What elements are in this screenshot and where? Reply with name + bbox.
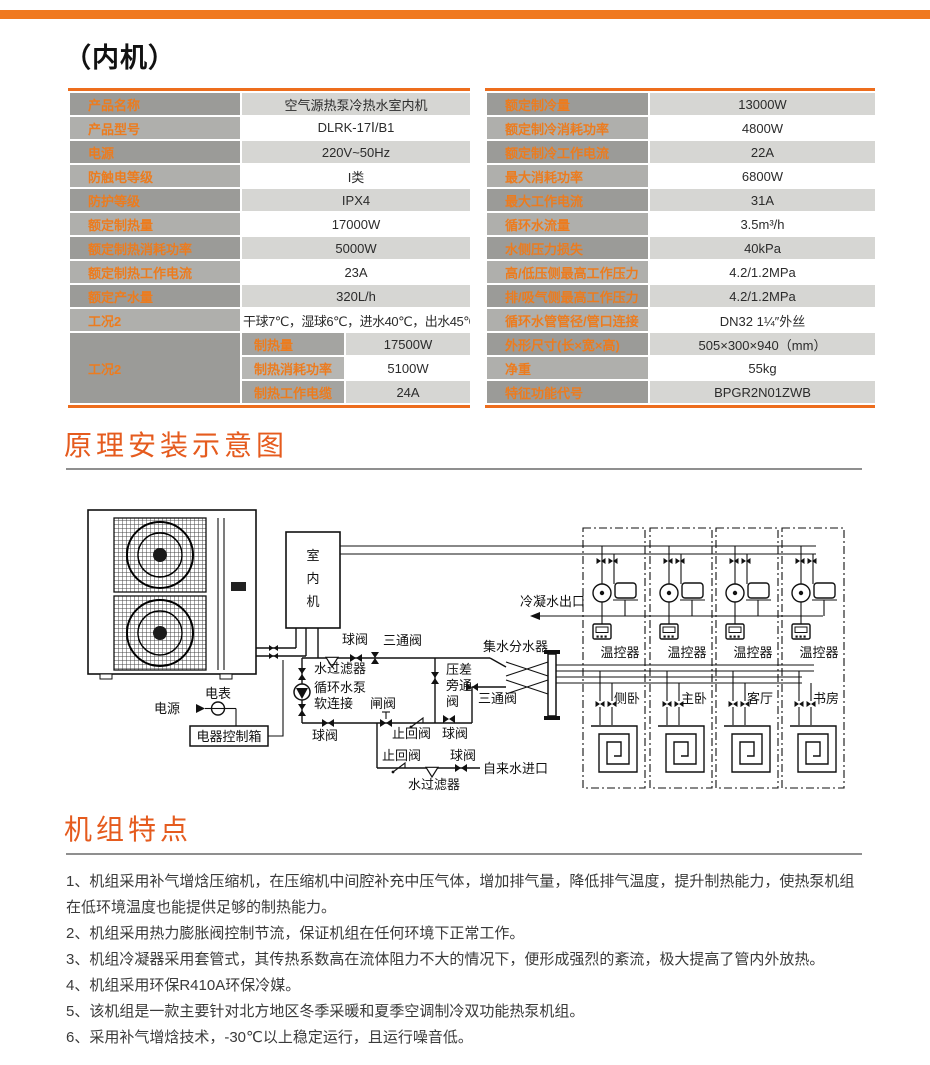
table-row: 防护等级IPX4	[69, 188, 471, 212]
tap-water-inlet-label: 自来水进口	[483, 761, 548, 776]
spec-value: 5100W	[345, 356, 471, 380]
spec-value: 13000W	[649, 92, 876, 116]
table-row: 外形尺寸(长×宽×高)505×300×940（mm）	[486, 332, 876, 356]
table-row: 额定产水量320L/h	[69, 284, 471, 308]
thermostat-label: 温控器	[667, 645, 706, 660]
feature-item: 3、机组冷凝器采用套管式，其传热系数高在流体阻力不大的情况下，便形成强烈的紊流，…	[66, 947, 866, 973]
spec-value: 23A	[241, 260, 471, 284]
indoor-unit: 室 内 机	[286, 532, 340, 628]
ball-valve-icon	[443, 715, 455, 723]
spec-label: 防护等级	[69, 188, 241, 212]
spec-value: 55kg	[649, 356, 876, 380]
spec-label: 电源	[69, 140, 241, 164]
spec-label: 最大消耗功率	[486, 164, 649, 188]
room-label: 侧卧	[614, 691, 640, 706]
table-row: 额定制热消耗功率5000W	[69, 236, 471, 260]
check-valve-label: 止回阀	[392, 726, 431, 741]
indoor-unit-label: 机	[306, 594, 319, 609]
gate-valve-icon	[380, 719, 392, 727]
feature-item: 2、机组采用热力膨胀阀控制节流，保证机组在任何环境下正常工作。	[66, 921, 866, 947]
spec-value: 空气源热泵冷热水室内机	[241, 92, 471, 116]
manifold-icon	[544, 650, 560, 720]
spec-label: 额定制热工作电流	[69, 260, 241, 284]
spec-value: 17000W	[241, 212, 471, 236]
table-row: 额定制冷消耗功率4800W	[486, 116, 876, 140]
power-arrow-icon	[196, 704, 205, 713]
table-row: 额定制热工作电流23A	[69, 260, 471, 284]
soft-connection-icon	[298, 668, 306, 680]
spec-group-label: 工况2	[69, 332, 241, 404]
spec-value: DN32 1¼″外丝	[649, 308, 876, 332]
table-row: 循环水管管径/管口连接DN32 1¼″外丝	[486, 308, 876, 332]
spec-value: 4.2/1.2MPa	[649, 260, 876, 284]
three-way-valve-label: 三通阀	[478, 691, 517, 706]
table-row: 产品型号DLRK-17Ⅰ/B1	[69, 116, 471, 140]
table-row: 额定制冷量13000W	[486, 92, 876, 116]
spec-value: 22A	[649, 140, 876, 164]
spec-table-right: 额定制冷量13000W 额定制冷消耗功率4800W 额定制冷工作电流22A 最大…	[485, 88, 875, 408]
bypass-valve-icon	[431, 672, 439, 684]
spec-label: 额定制热消耗功率	[69, 236, 241, 260]
spec-value: 4.2/1.2MPa	[649, 284, 876, 308]
room-label: 书房	[813, 691, 839, 706]
power-supply-label: 电源	[154, 701, 180, 716]
spec-label: 产品型号	[69, 116, 241, 140]
circulation-pump-label: 循环水泵	[314, 680, 366, 695]
table-row: 循环水流量3.5m³/h	[486, 212, 876, 236]
electric-meter-label: 电表	[205, 686, 231, 701]
catalog-page: （内机） 产品名称空气源热泵冷热水室内机 产品型号DLRK-17Ⅰ/B1 电源2…	[0, 0, 930, 1065]
ball-valve-icon	[322, 719, 334, 727]
feature-list: 1、机组采用补气增焓压缩机，在压缩机中间腔补充中压气体，增加排气量，降低排气温度…	[66, 869, 866, 1051]
check-valve-label: 止回阀	[382, 748, 421, 763]
table-row: 额定制热量17000W	[69, 212, 471, 236]
soft-connection-icon	[298, 704, 306, 716]
table-row: 产品名称空气源热泵冷热水室内机	[69, 92, 471, 116]
spec-value: 40kPa	[649, 236, 876, 260]
spec-value: IPX4	[241, 188, 471, 212]
feature-item: 5、该机组是一款主要针对北方地区冬季采暖和夏季空调制冷双功能热泵机组。	[66, 999, 866, 1025]
table-row: 排/吸气侧最高工作压力4.2/1.2MPa	[486, 284, 876, 308]
spec-value: 320L/h	[241, 284, 471, 308]
spec-value: 3.5m³/h	[649, 212, 876, 236]
page-title: （内机）	[64, 36, 176, 75]
spec-value: 220V~50Hz	[241, 140, 471, 164]
thermostat-label: 温控器	[733, 645, 772, 660]
spec-value: 24A	[345, 380, 471, 404]
ball-valve-label: 球阀	[342, 632, 368, 647]
ball-valve-label: 球阀	[312, 728, 338, 743]
spec-label: 循环水管管径/管口连接	[486, 308, 649, 332]
gate-valve-label: 闸阀	[370, 696, 396, 711]
bypass-valve-label: 阀	[446, 694, 459, 709]
top-accent-bar	[0, 10, 930, 19]
spec-label: 排/吸气侧最高工作压力	[486, 284, 649, 308]
spec-value: DLRK-17Ⅰ/B1	[241, 116, 471, 140]
diagram-section-heading: 原理安装示意图	[64, 424, 288, 464]
spec-label: 最大工作电流	[486, 188, 649, 212]
spec-label: 额定制冷量	[486, 92, 649, 116]
thermostat-label: 温控器	[600, 645, 639, 660]
spec-value: 5000W	[241, 236, 471, 260]
spec-label: 额定制冷工作电流	[486, 140, 649, 164]
table-row: 工况2制热量17500W	[69, 332, 471, 356]
spec-sublabel: 制热工作电缆	[241, 380, 345, 404]
table-row: 净重55kg	[486, 356, 876, 380]
spec-label: 水侧压力损失	[486, 236, 649, 260]
water-filter-label: 水过滤器	[314, 661, 366, 676]
spec-value: 6800W	[649, 164, 876, 188]
spec-label: 高/低压侧最高工作压力	[486, 260, 649, 284]
spec-value: BPGR2N01ZWB	[649, 380, 876, 404]
spec-label: 循环水流量	[486, 212, 649, 236]
water-filter-icon	[426, 767, 438, 777]
feature-item: 4、机组采用环保R410A环保冷媒。	[66, 973, 866, 999]
manifold-label: 集水分水器	[483, 639, 548, 654]
room-label: 客厅	[747, 691, 773, 706]
spec-label: 特征功能代号	[486, 380, 649, 404]
table-row: 最大工作电流31A	[486, 188, 876, 212]
table-row: 额定制冷工作电流22A	[486, 140, 876, 164]
spec-label: 额定制冷消耗功率	[486, 116, 649, 140]
outdoor-unit	[88, 510, 256, 679]
spec-value: 干球7℃，湿球6℃，进水40℃，出水45℃	[241, 308, 471, 332]
spec-label: 额定产水量	[69, 284, 241, 308]
indoor-unit-label: 内	[306, 571, 319, 586]
feature-item: 6、采用补气增焓技术，-30℃以上稳定运行，且运行噪音低。	[66, 1025, 866, 1051]
control-box-label: 电器控制箱	[196, 729, 261, 744]
bypass-valve-label: 压差	[446, 662, 472, 677]
spec-value: 31A	[649, 188, 876, 212]
indoor-unit-label: 室	[306, 548, 319, 563]
table-row: 特征功能代号BPGR2N01ZWB	[486, 380, 876, 404]
spec-label: 外形尺寸(长×宽×高)	[486, 332, 649, 356]
ball-valve-label: 球阀	[450, 748, 476, 763]
spec-value: I类	[241, 164, 471, 188]
installation-schematic: 室 内 机 球阀 三通阀 水过滤器 循环水泵 软连接	[70, 496, 870, 800]
feature-item: 1、机组采用补气增焓压缩机，在压缩机中间腔补充中压气体，增加排气量，降低排气温度…	[66, 869, 866, 921]
spec-table-left: 产品名称空气源热泵冷热水室内机 产品型号DLRK-17Ⅰ/B1 电源220V~5…	[68, 88, 470, 408]
room-label: 主卧	[681, 691, 707, 706]
table-row: 工况2干球7℃，湿球6℃，进水40℃，出水45℃	[69, 308, 471, 332]
table-row: 水侧压力损失40kPa	[486, 236, 876, 260]
spec-label: 额定制热量	[69, 212, 241, 236]
condensate-outlet-label: 冷凝水出口	[520, 594, 585, 609]
refrigerant-valve-icon	[269, 645, 278, 651]
diagram-heading-underline	[66, 468, 862, 470]
features-heading-underline	[66, 853, 862, 855]
room-sections: 温控器 温控器 温控器 温控器 侧卧 主卧 客厅 书房	[583, 528, 844, 788]
spec-label: 防触电等级	[69, 164, 241, 188]
spec-label: 净重	[486, 356, 649, 380]
spec-label: 工况2	[69, 308, 241, 332]
spec-value: 4800W	[649, 116, 876, 140]
refrigerant-valve-icon	[269, 653, 278, 659]
hose-icon	[506, 662, 548, 694]
ball-valve-icon	[455, 764, 467, 772]
table-row: 电源220V~50Hz	[69, 140, 471, 164]
table-row: 最大消耗功率6800W	[486, 164, 876, 188]
three-way-valve-label: 三通阀	[383, 633, 422, 648]
ball-valve-label: 球阀	[442, 726, 468, 741]
spec-value: 505×300×940（mm）	[649, 332, 876, 356]
table-row: 防触电等级I类	[69, 164, 471, 188]
spec-sublabel: 制热消耗功率	[241, 356, 345, 380]
spec-value: 17500W	[345, 332, 471, 356]
spec-label: 产品名称	[69, 92, 241, 116]
spec-sublabel: 制热量	[241, 332, 345, 356]
table-row: 高/低压侧最高工作压力4.2/1.2MPa	[486, 260, 876, 284]
soft-connection-label: 软连接	[314, 696, 353, 711]
thermostat-label: 温控器	[799, 645, 838, 660]
water-filter-label: 水过滤器	[408, 777, 460, 792]
features-section-heading: 机组特点	[64, 808, 192, 848]
